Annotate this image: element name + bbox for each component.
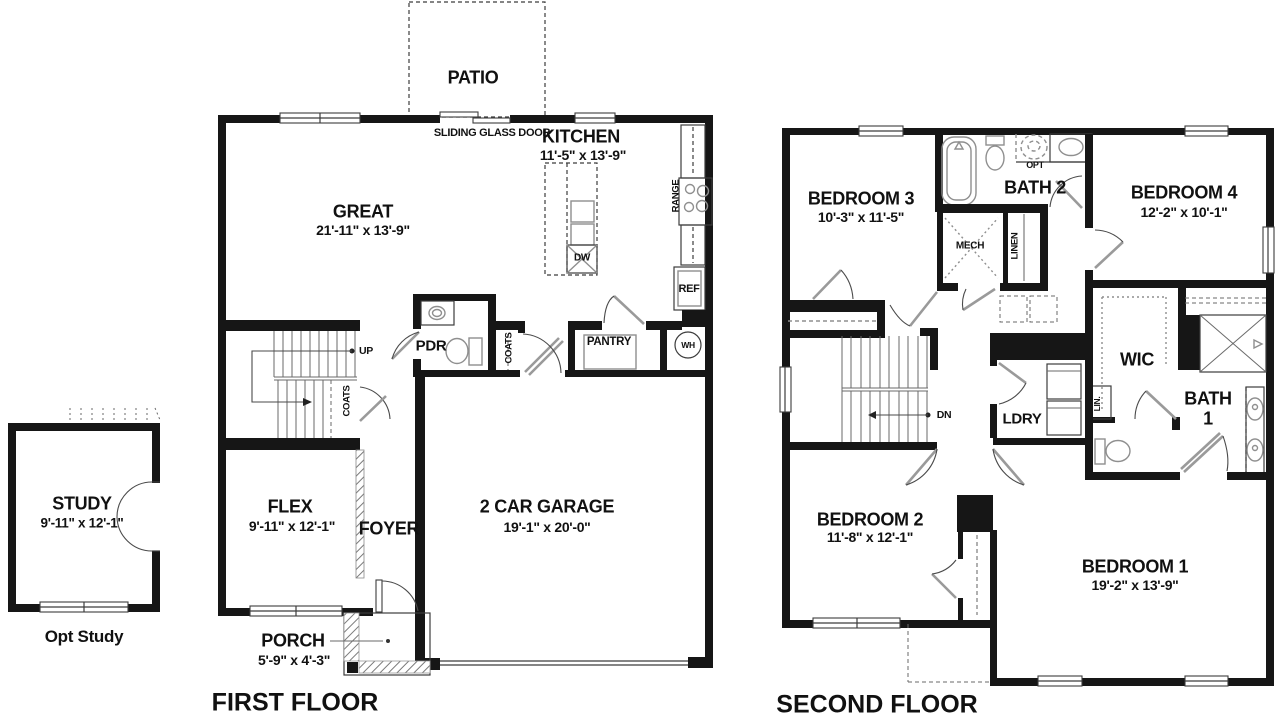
sliding-glass-door-label: SLIDING GLASS DOOR [434,127,550,139]
refrigerator-label: REF [678,283,699,295]
study-label: STUDY [52,494,112,515]
pdr-sink-icon [429,307,445,320]
bedroom2-closet-door-icon [932,560,956,598]
kitchen-dims: 11'-5" x 13'-9" [540,147,626,163]
great-room-window [280,113,360,123]
pdr-toilet-icon [446,338,482,365]
stairs-second-floor [782,336,937,450]
bath2-toilet-icon [986,136,1004,170]
second-floor-title: SECOND FLOOR [776,691,977,718]
bath2-label: BATH 2 [1004,178,1066,199]
pantry-label: PANTRY [587,336,631,348]
great-room-dims: 21'-11" x 13'-9" [316,222,410,238]
bedroom4-top-window [1185,126,1228,136]
stairs-first-floor [226,320,390,450]
bath1-toilet-icon [1095,439,1130,464]
tub-icon [942,137,976,205]
bedroom4-label: BEDROOM 4 [1131,183,1237,204]
bedroom3-dims: 10'-3" x 11'-5" [818,209,904,225]
first-floor-title: FIRST FLOOR [212,689,379,718]
garage-dims: 19'-1" x 20'-0" [503,519,590,535]
pantry-door-icon [604,296,644,324]
kitchen-label: KITCHEN [542,127,620,148]
first-floor-plan [218,2,713,675]
wic-door-icon [1135,391,1176,419]
sliding-glass-door-icon [440,112,510,123]
mech-label: MECH [956,241,984,252]
bedroom4-side-window [1263,227,1274,273]
range-label: RANGE [671,180,682,213]
laundry-room [990,333,1093,445]
opt-study-caption: Opt Study [45,627,124,647]
hall-door-icon [890,292,937,326]
flex-room-dims: 9'-11" x 12'-1" [249,518,335,534]
flex-room-label: FLEX [268,497,313,518]
front-door-icon [376,580,418,612]
floor-plan-sheet: STUDY 9'-11" x 12'-1" Opt Study PATIO SL… [0,0,1280,718]
foyer-label: FOYER [359,519,420,540]
bath1-vanity-icon [1246,387,1264,473]
garage-label: 2 CAR GARAGE [480,497,614,518]
bath1-bedroom1-door-icon [1181,433,1228,472]
bath2-room [938,134,1092,213]
optional-wall-hatch [356,450,364,578]
bedroom1-dims: 19'-2" x 13'-9" [1091,577,1178,593]
porch-label: PORCH [261,631,325,652]
powder-room-label: PDR [416,338,447,355]
water-heater-label: WH [681,340,695,350]
roof-dash-marks [70,408,160,424]
bath1-dashed-band [1185,298,1266,303]
stairs-down-label: DN [937,409,952,421]
bedroom2-window [813,618,900,628]
attic-access-outline [1000,296,1057,322]
bedroom2-closet [932,532,977,620]
bedroom4-dims: 12'-2" x 10'-1" [1140,204,1227,220]
lin-closet-label: LIN. [1092,397,1102,412]
kitchen-counter [681,125,705,265]
powder-room [392,294,496,370]
wic-label: WIC [1120,350,1154,371]
bedroom3-label: BEDROOM 3 [808,189,914,210]
kitchen-window [575,113,615,123]
coats-stairs-label: COATS [342,385,353,416]
floor-plan-linework [0,0,1280,718]
flex-window [250,606,342,616]
roof-below-outline [908,624,990,682]
bedroom2-door-icon [906,449,937,485]
stair-treads-2 [842,336,928,442]
patio-label: PATIO [448,68,499,89]
porch-dims: 5'-9" x 4'-3" [258,652,330,668]
garage-entry-door-icon [523,334,563,375]
washer-dryer-icon [1047,364,1081,435]
bedroom3-window [859,126,903,136]
bedroom2-dims: 11'-8" x 12'-1" [827,529,913,545]
stairs-up-label: UP [359,345,373,357]
bedroom4-door-icon [1095,230,1123,268]
bedroom3-door-icon [813,270,853,299]
shower-icon [1200,315,1266,372]
great-room-label: GREAT [333,202,393,223]
study-window [40,602,128,612]
study-dims: 9'-11" x 12'-1" [40,516,123,531]
mech-closet [937,204,1048,291]
opt-fixture-label: OPT [1026,160,1044,170]
coats-hall-label: COATS [504,332,515,363]
laundry-label: LDRY [1002,411,1041,428]
mech-door-icon [962,289,995,310]
linen-label: LINEN [1010,232,1021,259]
stair-landing-window [780,367,791,412]
optional-sink-icon [1016,134,1047,161]
dishwasher-label: DW [574,253,590,264]
bath1-label-line2: 1 [1203,409,1213,430]
bath1-label-line1: BATH [1184,389,1231,410]
bedroom1-door-icon [993,449,1024,485]
bedroom1-label: BEDROOM 1 [1082,557,1188,578]
bedroom2-label: BEDROOM 2 [817,510,923,531]
laundry-door-icon [999,363,1026,404]
understair-coats-door-icon [360,387,390,421]
patio-outline [409,2,545,117]
